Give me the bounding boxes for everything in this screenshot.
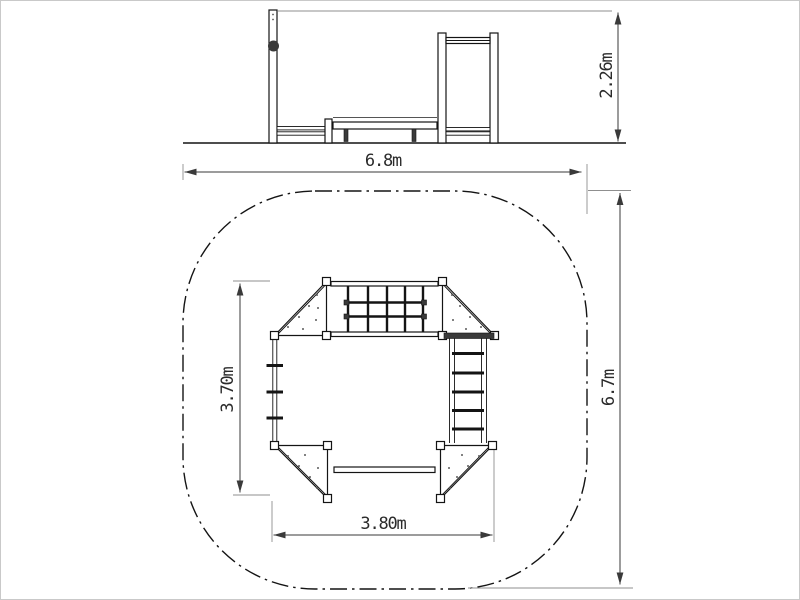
bench-leg — [344, 129, 348, 142]
net-bottom-rail — [331, 332, 438, 337]
bench — [333, 118, 437, 142]
platform-upper-right — [439, 278, 499, 340]
corner-post — [437, 495, 445, 503]
corner-post — [271, 442, 279, 450]
plan-view: 6.8m 6.7m 3.70m 3.80m — [183, 151, 633, 589]
corner-post — [439, 278, 447, 286]
corner-post — [323, 332, 331, 340]
corner-post — [324, 442, 332, 450]
tall-post — [269, 10, 277, 143]
ladder — [444, 333, 494, 443]
dimension-label-structure-width: 3.80m — [360, 514, 406, 534]
wall-bars — [267, 340, 284, 441]
frame-post — [438, 33, 446, 143]
left-low-rails — [277, 127, 325, 136]
corner-post — [324, 495, 332, 503]
dimension-zone-width-6-8m: 6.8m — [183, 151, 587, 214]
balance-beam — [334, 467, 435, 473]
dimension-label-zone-width: 6.8m — [365, 151, 402, 171]
bench-leg — [412, 129, 416, 142]
corner-post — [323, 278, 331, 286]
corner-post — [437, 442, 445, 450]
climbing-net — [331, 282, 438, 337]
ladder-rungs — [452, 354, 484, 430]
dimension-label-zone-depth: 6.7m — [599, 369, 619, 406]
corner-post — [489, 442, 497, 450]
elevation-view: 2.26m — [183, 10, 626, 143]
net-top-rail — [331, 282, 438, 287]
technical-drawing: 2.26m 6.8m 6.7m 3.70m — [1, 1, 799, 599]
drawing-canvas: 2.26m 6.8m 6.7m 3.70m — [0, 0, 800, 600]
short-post — [325, 119, 332, 143]
overhead-bar-frame — [438, 33, 498, 143]
dimension-label-height: 2.26m — [597, 52, 617, 98]
platform-lower-left — [271, 442, 332, 503]
platform-lower-right — [437, 442, 497, 503]
frame-post — [490, 33, 498, 143]
ladder-top-board — [444, 333, 494, 339]
net-vertical-ropes — [348, 286, 423, 332]
swing-ring — [268, 41, 279, 52]
platform-upper-left — [271, 278, 331, 340]
corner-post — [271, 332, 279, 340]
net-horizontal-ropes — [344, 300, 427, 319]
dimension-zone-depth-6-7m: 6.7m — [468, 191, 633, 589]
dimension-structure-depth-3-70m: 3.70m — [218, 281, 270, 495]
dimension-label-structure-depth: 3.70m — [218, 366, 238, 412]
